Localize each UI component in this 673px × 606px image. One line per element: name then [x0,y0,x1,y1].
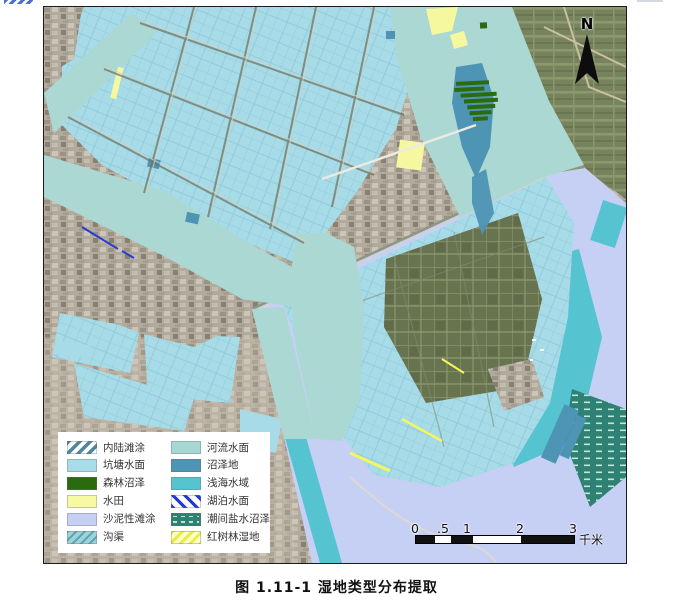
legend-label: 内陆滩涂 [103,443,145,454]
legend-label: 沙泥性滩涂 [103,514,156,525]
inland-mudflat-swatch [67,441,97,454]
pond-water-swatch [67,459,97,472]
forest-swamp-swatch [67,477,97,490]
river-water-swatch [171,441,201,454]
legend-item-ditch: 沟渠 [67,528,163,546]
scale-tick-1: 1 [463,521,471,536]
mangrove-wetland-swatch [171,531,201,544]
legend-label: 河流水面 [207,443,249,454]
paddy-field-swatch [67,495,97,508]
cropped-swatch-fragment [4,0,33,4]
scale-tick-3: 3 [569,521,577,536]
scale-tick-2: 2 [516,521,524,536]
legend-item-river-water: 河流水面 [171,439,267,457]
legend-label: 沼泽地 [207,460,239,471]
shallow-sea-swatch [171,477,201,490]
legend-item-inland-mudflat: 内陆滩涂 [67,439,163,457]
tidal-salt-marsh-swatch [171,513,201,526]
scale-bar-segments [415,535,575,544]
legend-label: 坑塘水面 [103,460,145,471]
figure-caption: 图 1.11-1 湿地类型分布提取 [0,577,673,597]
legend-item-forest-swamp: 森林沼泽 [67,475,163,493]
north-arrow: N [562,16,612,88]
legend-label: 森林沼泽 [103,478,145,489]
map-legend: 内陆滩涂 坑塘水面 森林沼泽 水田 沙泥性滩涂 沟渠 河流水面 沼泽地 浅海水域… [58,432,270,553]
lake-water-swatch [171,495,201,508]
legend-label: 沟渠 [103,532,124,543]
legend-item-swamp: 沼泽地 [171,457,267,475]
legend-item-lake-water: 湖泊水面 [171,493,267,511]
legend-item-pond-water: 坑塘水面 [67,457,163,475]
legend-item-sandy-mudflat: 沙泥性滩涂 [67,510,163,528]
sandy-mudflat-swatch [67,513,97,526]
document-page: 内陆滩涂 坑塘水面 森林沼泽 水田 沙泥性滩涂 沟渠 河流水面 沼泽地 浅海水域… [0,0,673,606]
legend-item-paddy-field: 水田 [67,493,163,511]
legend-label: 浅海水域 [207,478,249,489]
legend-label: 潮间盐水沼泽 [207,514,270,525]
legend-item-tidal-salt-marsh: 潮间盐水沼泽 [171,510,267,528]
scale-tick-05: .5 [437,521,449,536]
legend-label: 红树林湿地 [207,532,260,543]
north-label: N [562,16,612,33]
scale-unit: 千米 [579,531,603,548]
ditch-swatch [67,531,97,544]
legend-item-shallow-sea: 浅海水域 [171,475,267,493]
legend-label: 湖泊水面 [207,496,249,507]
north-arrow-icon [572,34,602,88]
cropped-line-fragment [637,0,663,2]
legend-item-mangrove-wetland: 红树林湿地 [171,528,267,546]
swamp-swatch [171,459,201,472]
scale-tick-0: 0 [411,521,419,536]
legend-label: 水田 [103,496,124,507]
